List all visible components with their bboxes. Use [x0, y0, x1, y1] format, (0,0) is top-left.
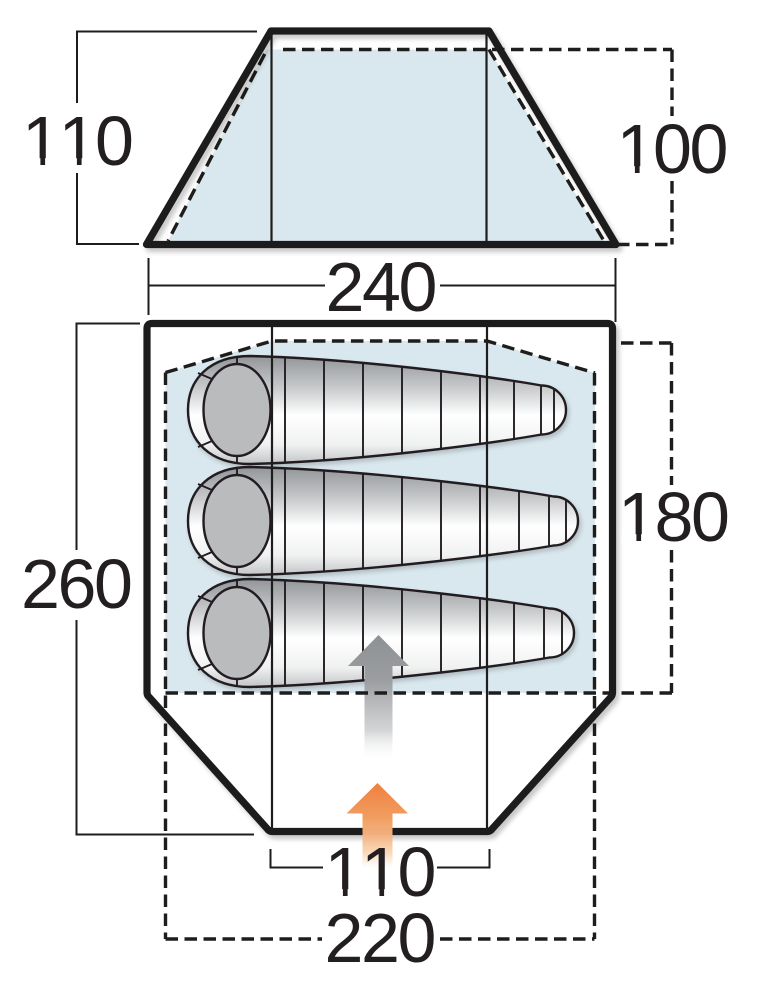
svg-text:4: 4	[362, 248, 401, 326]
svg-text:0: 0	[690, 110, 729, 188]
svg-text:2: 2	[325, 899, 364, 977]
svg-text:6: 6	[58, 545, 97, 623]
svg-text:8: 8	[655, 478, 694, 556]
svg-text:1: 1	[617, 110, 656, 188]
svg-text:2: 2	[326, 248, 365, 326]
svg-text:2: 2	[361, 899, 400, 977]
svg-text:0: 0	[653, 110, 692, 188]
svg-text:1: 1	[22, 102, 61, 180]
svg-text:1: 1	[618, 478, 657, 556]
svg-text:1: 1	[59, 102, 98, 180]
svg-text:0: 0	[399, 248, 438, 326]
svg-text:2: 2	[21, 545, 60, 623]
svg-text:0: 0	[398, 899, 437, 977]
svg-text:0: 0	[94, 545, 133, 623]
svg-text:0: 0	[691, 478, 730, 556]
svg-text:0: 0	[95, 102, 134, 180]
